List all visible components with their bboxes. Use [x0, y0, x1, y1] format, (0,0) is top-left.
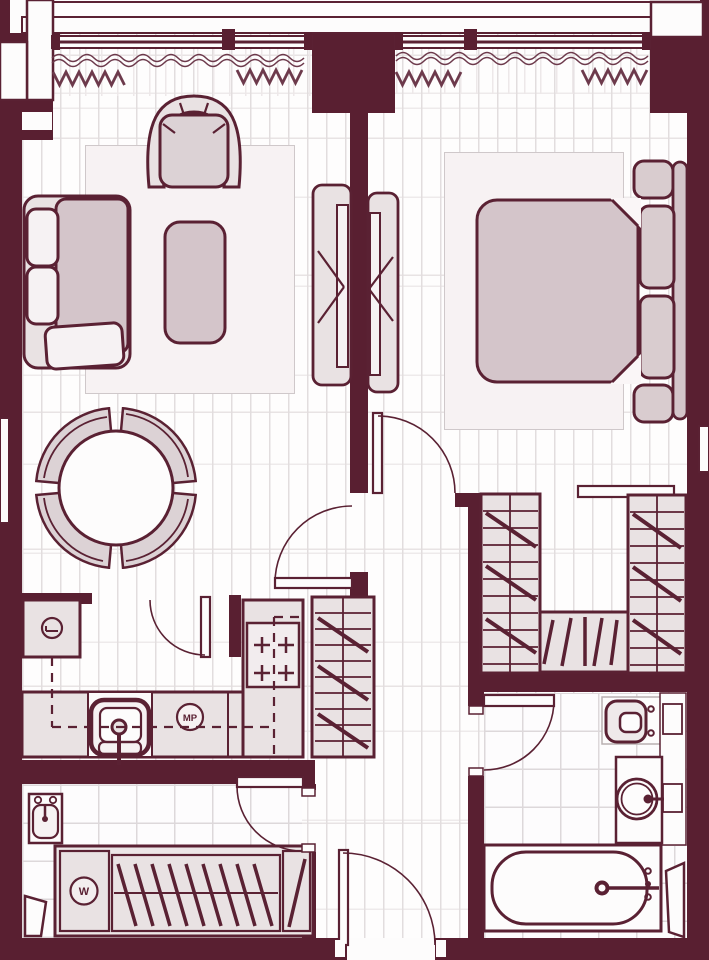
left-wall-niche: [0, 418, 9, 523]
wall-bottom-left: [0, 938, 347, 960]
washer-label: W: [79, 886, 90, 898]
bath-corner-panel: [666, 863, 684, 937]
sofa-bottom-cushion: [45, 322, 125, 369]
bedroom-zigzag-curtain-left: [396, 72, 461, 85]
living-room: [24, 96, 351, 568]
pier-left-notch: [22, 112, 52, 130]
bathtub-faucet: [597, 883, 608, 894]
entrance-jamb-left: [335, 940, 345, 957]
living-door-leaf: [275, 578, 352, 588]
basin-faucet: [644, 795, 653, 804]
kitchen: МР: [22, 597, 374, 765]
entrance-jamb-right: [436, 940, 446, 957]
bathroom-door-jamb-bottom: [469, 768, 483, 776]
floor-plan: МР: [0, 0, 709, 960]
kitchen-door-arc: [150, 600, 205, 655]
sofa: [24, 196, 130, 370]
hall-basin-tap-1: [35, 797, 41, 803]
bed-pillow-1: [640, 206, 674, 288]
plan-drawing: МР: [0, 0, 709, 960]
bedroom: [368, 161, 687, 422]
tv-unit-bedroom: [368, 193, 398, 392]
living-zigzag-curtain-left: [53, 72, 125, 85]
bed-pillow-2: [640, 296, 674, 378]
bathtub-control-3: [645, 881, 651, 887]
balcony-band-outer: [28, 2, 688, 17]
hall-basin-tap-2: [50, 797, 56, 803]
refrigerator: [23, 600, 80, 657]
balcony-corner-left: [0, 42, 27, 100]
hall-washbasin: [29, 794, 62, 843]
kitchen-tall-cabinet: [312, 597, 374, 757]
pier-center: [312, 33, 395, 113]
right-wall-niche: [699, 426, 709, 472]
toilet-seat: [620, 713, 641, 732]
bathtub: [484, 845, 661, 931]
nightstand-bottom: [634, 385, 673, 422]
sofa-back-cushion-1: [27, 209, 58, 266]
bathroom-door-jamb-top: [469, 706, 483, 714]
bedroom-door-arc: [378, 416, 455, 493]
kitchen-sink: [91, 700, 149, 765]
wall-closet-bathroom: [468, 672, 687, 692]
closet-shelving-left: [481, 494, 540, 673]
closet-lower-unit: [540, 612, 628, 672]
bathroom-door-leaf: [484, 695, 554, 706]
hall-door-jamb-bottom: [302, 844, 315, 852]
coffee-table: [165, 222, 225, 343]
living-zigzag-curtain-right: [237, 70, 302, 83]
microwave-label: МР: [183, 713, 198, 724]
hall-corner-panel: [25, 896, 46, 936]
wall-stub-kitchen-right: [229, 595, 241, 657]
armchair: [148, 96, 241, 187]
tv-unit-living: [313, 185, 351, 385]
balcony-pillar-left: [27, 0, 53, 100]
bed-blanket: [477, 200, 638, 382]
dining-table: [59, 431, 173, 545]
closet-shelving-right: [628, 495, 686, 673]
wall-bath-left-lower: [468, 776, 484, 960]
wall-right: [687, 33, 709, 960]
bedroom-door-leaf: [373, 413, 382, 493]
hall-basin-faucet: [42, 816, 48, 822]
washbasin-counter: [616, 757, 664, 843]
entrance-door-arc: [343, 853, 435, 945]
bathroom: [484, 693, 686, 937]
kitchen-door-leaf: [201, 597, 210, 657]
bed-headboard: [673, 162, 687, 419]
armchair-seat: [160, 115, 228, 187]
entrance-door-leaf: [339, 850, 348, 945]
living-door-arc: [275, 506, 352, 583]
hall-door-arc: [237, 786, 302, 851]
wall-center-divider: [350, 113, 368, 493]
hallway: W: [25, 794, 313, 936]
hall-door-jamb-top: [302, 788, 315, 796]
nightstand-top: [634, 161, 673, 198]
sofa-back-cushion-2: [27, 267, 58, 324]
bathroom-door-arc: [484, 700, 554, 770]
balcony-band-inner: [22, 17, 687, 33]
walk-in-closet: [481, 486, 686, 673]
hall-door-leaf: [237, 777, 303, 787]
bedroom-zigzag-curtain-right: [582, 70, 647, 83]
pier-right: [650, 33, 709, 113]
balcony-pillar-right: [651, 2, 703, 37]
hall-closet: W: [55, 846, 313, 936]
dining-set: [36, 408, 195, 567]
